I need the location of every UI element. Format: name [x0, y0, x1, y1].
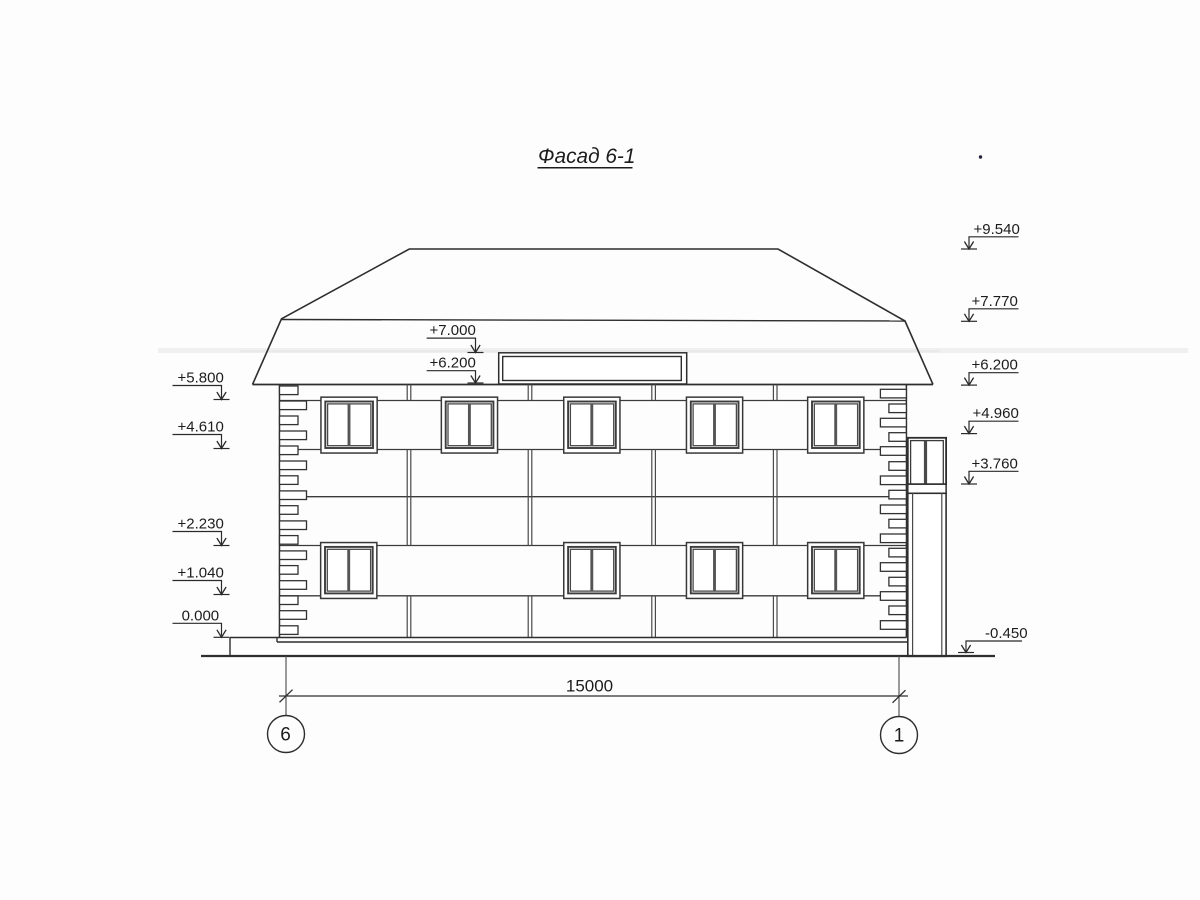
svg-text:0.000: 0.000	[182, 607, 220, 624]
svg-text:+7.770: +7.770	[972, 293, 1018, 310]
svg-text:6: 6	[280, 725, 291, 746]
svg-text:15000: 15000	[566, 677, 613, 696]
svg-text:+6.200: +6.200	[430, 355, 476, 372]
svg-text:-0.450: -0.450	[985, 625, 1028, 642]
svg-text:+5.800: +5.800	[178, 370, 224, 387]
svg-text:+1.040: +1.040	[178, 565, 224, 582]
svg-text:+9.540: +9.540	[974, 221, 1020, 238]
svg-text:+7.000: +7.000	[430, 322, 476, 339]
svg-text:1: 1	[894, 726, 905, 747]
svg-text:Фасад 6-1: Фасад 6-1	[538, 145, 635, 168]
svg-text:+2.230: +2.230	[178, 516, 224, 533]
svg-text:+4.960: +4.960	[973, 405, 1019, 422]
svg-text:+6.200: +6.200	[972, 357, 1018, 374]
svg-text:+3.760: +3.760	[972, 455, 1018, 472]
svg-text:+4.610: +4.610	[178, 419, 224, 436]
